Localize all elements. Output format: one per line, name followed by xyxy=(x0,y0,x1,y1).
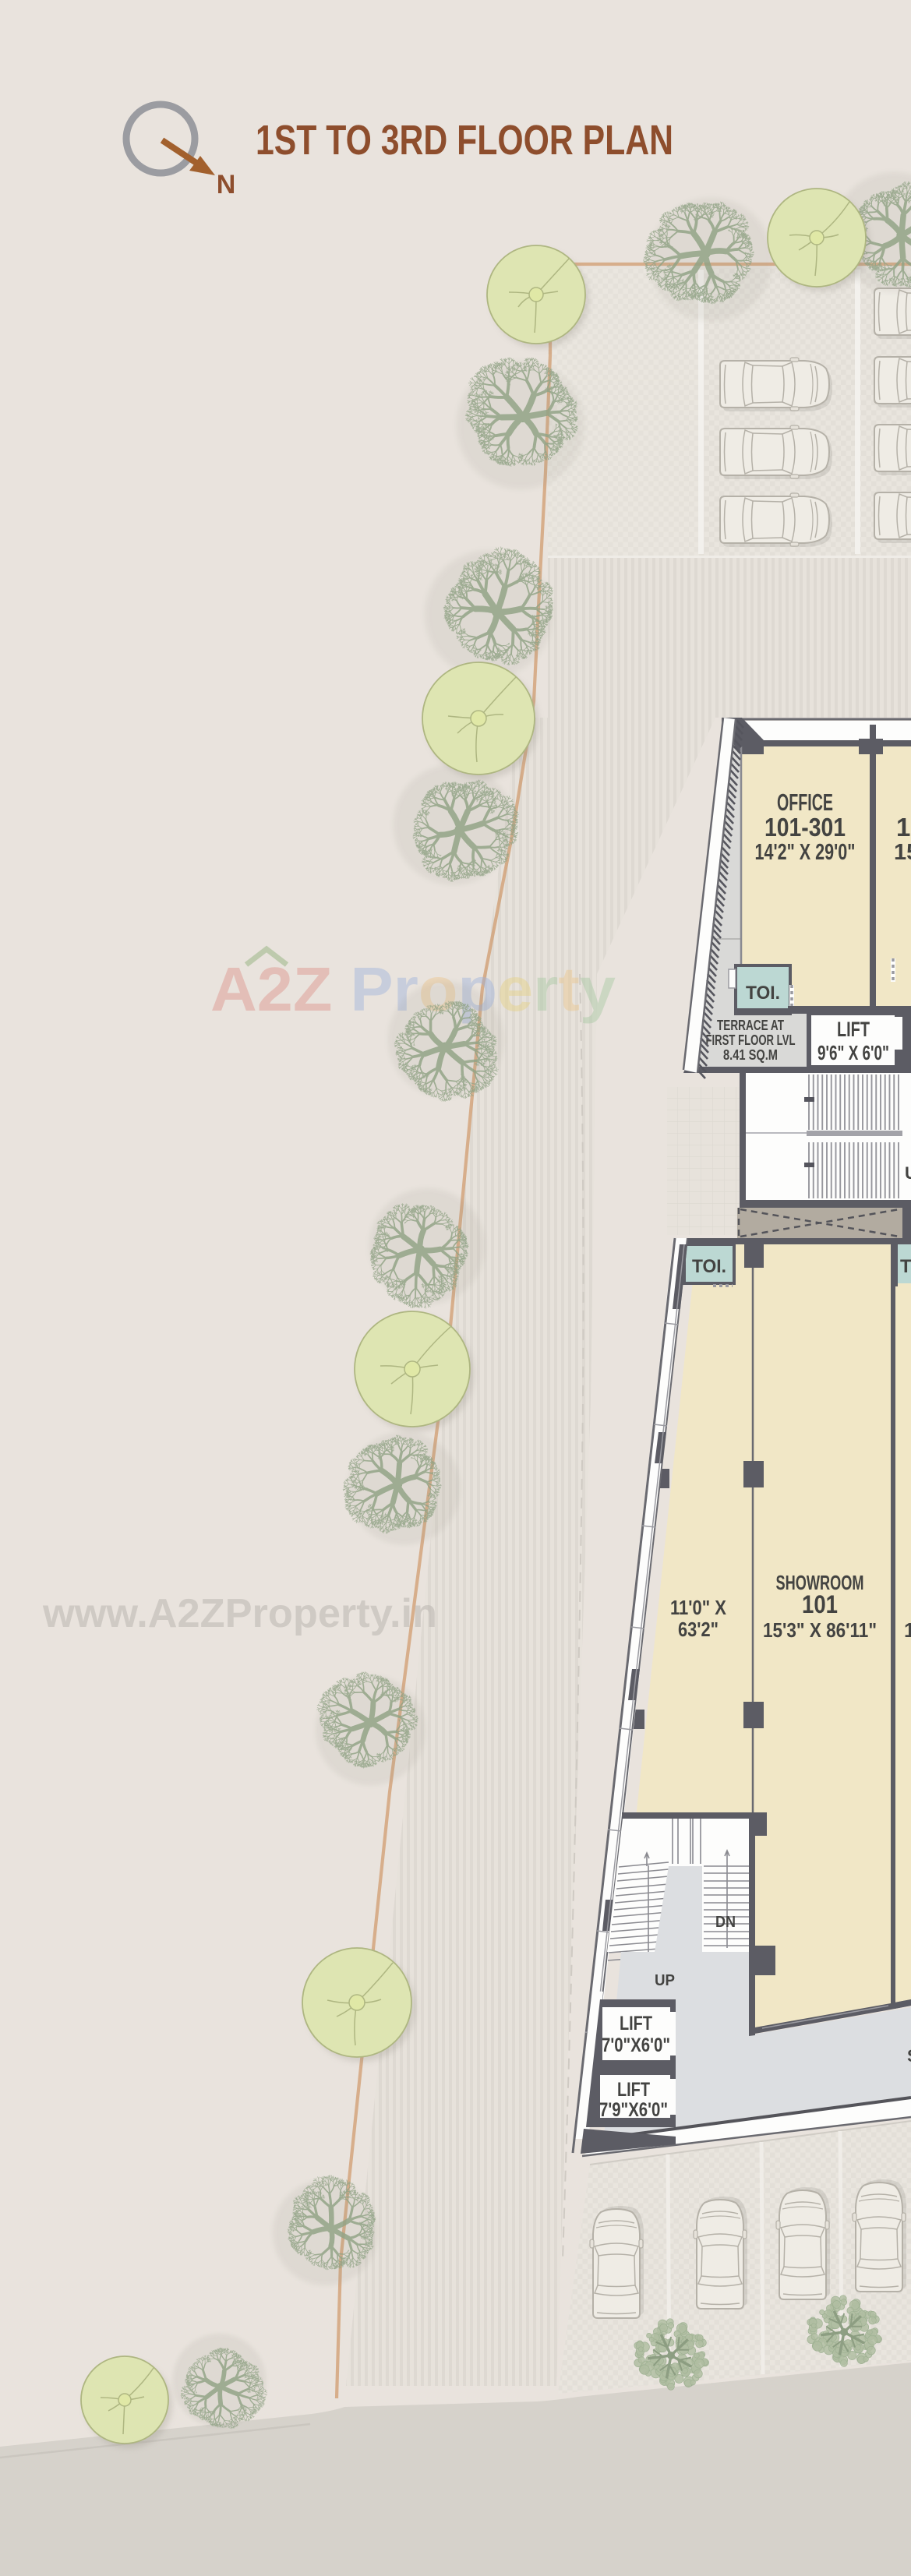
svg-text:UP: UP xyxy=(655,1972,675,1989)
svg-text:TOI.: TOI. xyxy=(692,1256,726,1277)
svg-text:9'6" X 6'0": 9'6" X 6'0" xyxy=(817,1041,889,1064)
svg-text:14'2" X 29'0": 14'2" X 29'0" xyxy=(755,840,856,865)
svg-text:15'3" X 86'11": 15'3" X 86'11" xyxy=(763,1618,877,1642)
svg-text:OFFICE: OFFICE xyxy=(777,789,833,816)
svg-text:LIFT: LIFT xyxy=(617,2079,650,2101)
svg-text:1: 1 xyxy=(904,1618,911,1642)
svg-text:FIRST FLOOR LVL: FIRST FLOOR LVL xyxy=(706,1032,796,1048)
svg-text:63'2": 63'2" xyxy=(678,1618,719,1641)
svg-text:LIFT: LIFT xyxy=(837,1018,870,1041)
svg-text:TOI.: TOI. xyxy=(746,983,780,1004)
svg-text:UP: UP xyxy=(905,1163,911,1183)
svg-text:11'0" X: 11'0" X xyxy=(670,1596,727,1619)
svg-text:15': 15' xyxy=(894,840,911,865)
svg-text:8.41 SQ.M: 8.41 SQ.M xyxy=(723,1047,778,1063)
svg-text:7'0"X6'0": 7'0"X6'0" xyxy=(602,2034,670,2056)
svg-text:1ST TO 3RD FLOOR PLAN: 1ST TO 3RD FLOOR PLAN xyxy=(256,117,673,164)
svg-text:1: 1 xyxy=(896,813,910,842)
svg-text:101-301: 101-301 xyxy=(764,813,846,842)
svg-text:N: N xyxy=(217,170,236,199)
svg-text:DN: DN xyxy=(715,1914,736,1931)
svg-text:www.A2ZProperty.in: www.A2ZProperty.in xyxy=(42,1591,437,1636)
svg-text:101: 101 xyxy=(802,1590,838,1618)
svg-text:LIFT: LIFT xyxy=(620,2013,652,2034)
svg-text:S: S xyxy=(907,2046,911,2066)
svg-text:7'9"X6'0": 7'9"X6'0" xyxy=(599,2099,668,2121)
svg-text:TERRACE AT: TERRACE AT xyxy=(717,1018,784,1033)
svg-text:T: T xyxy=(900,1256,911,1277)
